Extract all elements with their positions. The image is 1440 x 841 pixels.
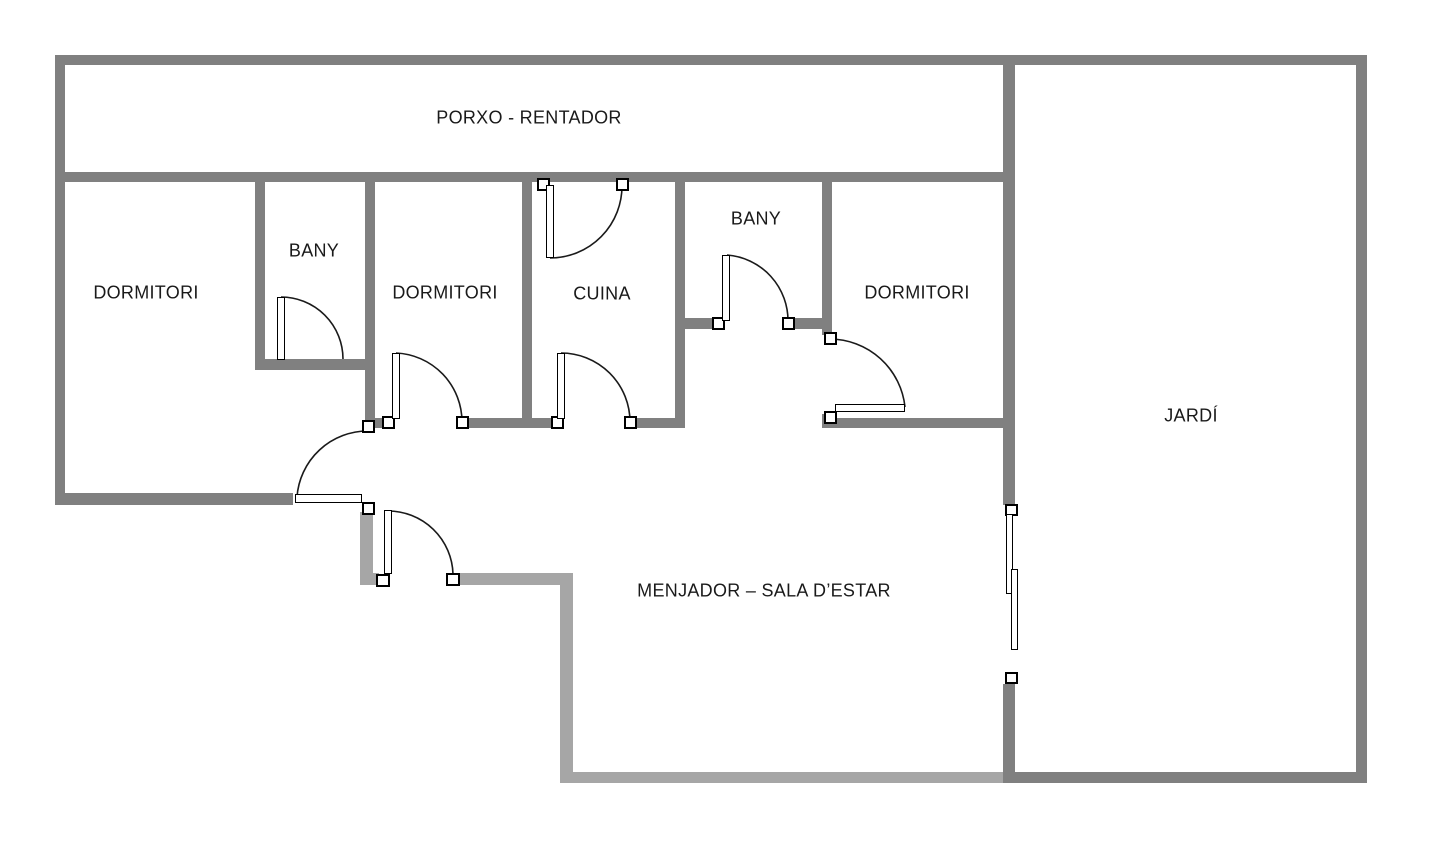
floor-plan: PORXO - RENTADOR DORMITORI BANY DORMITOR… [0, 0, 1440, 841]
room-label-jardi: JARDÍ [1164, 406, 1218, 427]
dorm3-door-arc [830, 339, 905, 407]
dorm2-door-latch-jamb [456, 416, 469, 429]
bany1-door-arc [281, 297, 343, 359]
room-label-dormitori-centre: DORMITORI [392, 283, 497, 304]
bany2-door-arc [727, 255, 788, 322]
bany1-door-leaf [277, 297, 285, 360]
menjador-door-latch-jamb [446, 573, 460, 586]
room-label-dormitori-dreta: DORMITORI [864, 283, 969, 304]
dorm2-door-arc [396, 353, 462, 422]
dorm3-door-hinge-jamb [824, 411, 837, 424]
room-label-bany-1: BANY [289, 241, 339, 262]
bany2-door-leaf [722, 255, 730, 321]
slider-bottom-jamb [1005, 672, 1018, 684]
dorm1-door-leaf [295, 494, 362, 503]
dorm3-door-latch-jamb [824, 332, 837, 345]
cuina-bottom-door-leaf [557, 353, 565, 419]
dorm1-door-hinge-jamb [362, 502, 375, 515]
menjador-door-hinge-jamb [376, 574, 390, 587]
bany2-door-latch-jamb [782, 317, 795, 330]
dorm1-door-arc [297, 431, 368, 497]
cuina-bottom-door-latch-jamb [624, 416, 637, 429]
room-label-dormitori-esquerra: DORMITORI [93, 283, 198, 304]
dorm3-door-leaf [835, 404, 905, 412]
room-label-porxo-rentador: PORXO - RENTADOR [436, 108, 621, 129]
room-label-cuina: CUINA [573, 284, 631, 305]
dorm2-door-leaf [392, 353, 400, 419]
room-label-bany-2: BANY [731, 209, 781, 230]
cuina-bottom-door-arc [561, 353, 630, 422]
menjador-door-arc [388, 511, 453, 574]
menjador-door-leaf [384, 510, 392, 574]
room-label-menjador-sala-destar: MENJADOR – SALA D’ESTAR [637, 581, 891, 602]
dorm1-door-latch-jamb [362, 420, 375, 433]
sliding-door-panel-inner [1011, 569, 1018, 650]
cuina-top-door-leaf [546, 185, 554, 258]
cuina-top-door-latch-jamb [616, 178, 629, 191]
door-arc-layer [0, 0, 1440, 841]
cuina-top-door-arc [550, 185, 622, 258]
